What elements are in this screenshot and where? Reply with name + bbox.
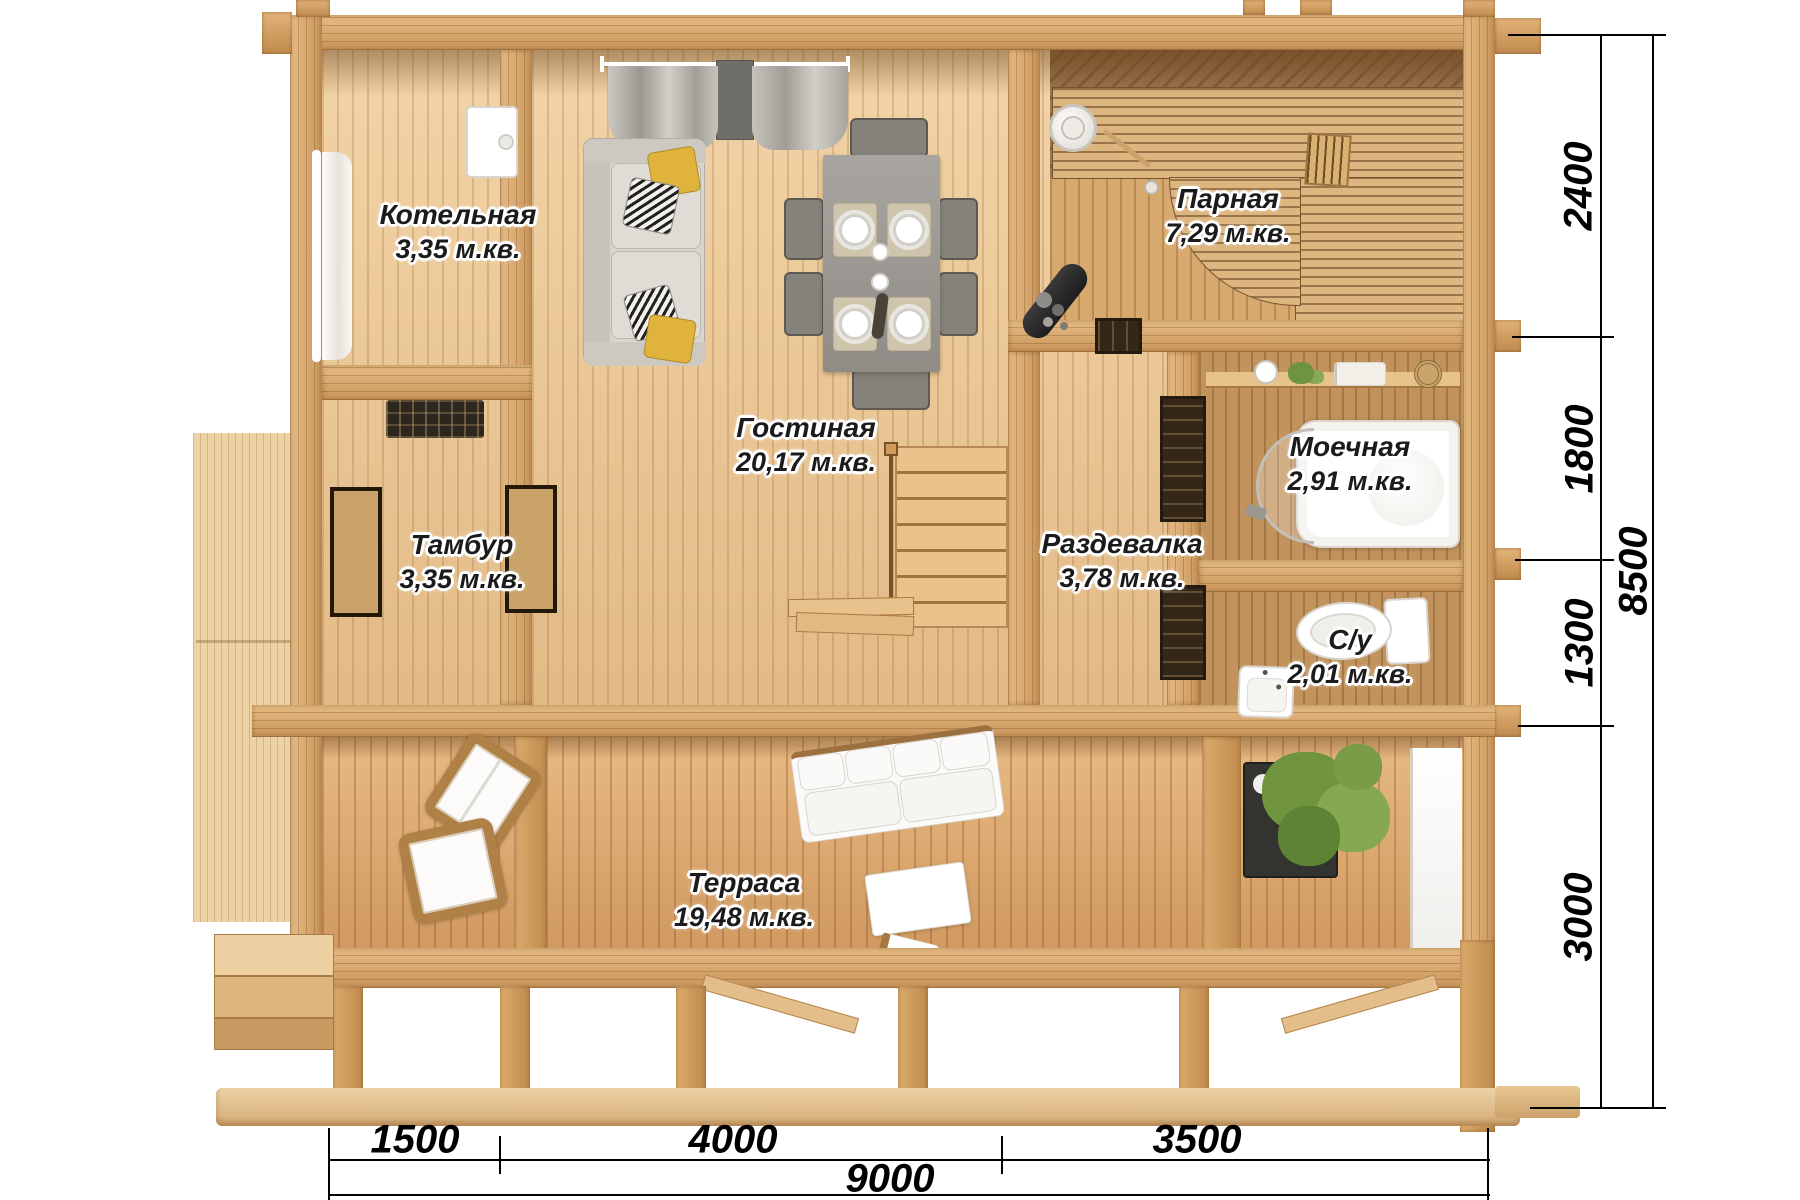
candle-2 bbox=[871, 273, 889, 291]
sauna-bucket-inner bbox=[1061, 116, 1085, 140]
front-post-3 bbox=[676, 986, 706, 1094]
room-name: Гостиная bbox=[736, 411, 876, 445]
stairs-landing-2 bbox=[796, 612, 915, 636]
wash-towels bbox=[1334, 362, 1386, 386]
wall-boiler-tambour bbox=[322, 365, 532, 400]
log-stub-top-2 bbox=[1300, 0, 1332, 15]
room-label-kotelnaya: Котельная 3,35 м.кв. bbox=[380, 198, 537, 266]
plate-3 bbox=[835, 304, 875, 344]
dim-value-8500: 8500 bbox=[1612, 527, 1657, 616]
front-post-1 bbox=[333, 986, 363, 1094]
wall-top bbox=[290, 15, 1495, 50]
wall-wash-wc bbox=[1199, 560, 1463, 592]
room-label-moechnaya: Моечная 2,91 м.кв. bbox=[1287, 430, 1412, 498]
sofa-back bbox=[584, 145, 610, 359]
terrace-armchair-2 bbox=[396, 816, 509, 926]
boiler-knob bbox=[498, 134, 514, 150]
floor-hatch-grate bbox=[386, 400, 484, 438]
stairs-newel-top bbox=[884, 442, 898, 456]
terrace-sofa-back-1 bbox=[796, 751, 846, 791]
front-post-5 bbox=[1179, 986, 1209, 1094]
room-area: 3,78 м.кв. bbox=[1041, 561, 1202, 595]
room-area: 19,48 м.кв. bbox=[674, 900, 814, 934]
log-stub-r2 bbox=[1495, 548, 1521, 580]
dining-chair-left-1 bbox=[784, 198, 824, 260]
room-label-terrasa: Терраса 19,48 м.кв. bbox=[674, 866, 814, 934]
tambour-window-left bbox=[330, 487, 382, 617]
room-name: Парная bbox=[1165, 182, 1290, 216]
dim-tick-bottom-1500 bbox=[499, 1136, 501, 1174]
terrace-post-mid-right bbox=[1203, 737, 1241, 955]
dim-tick-right-1300 bbox=[1518, 725, 1614, 727]
foundation-log-end-right bbox=[1495, 1086, 1580, 1118]
front-post-2 bbox=[500, 986, 530, 1094]
sauna-vent-grille bbox=[1304, 133, 1352, 188]
room-name: С/у bbox=[1287, 623, 1412, 657]
dim-tick-bottom-left bbox=[328, 1128, 330, 1200]
sauna-door bbox=[1095, 318, 1142, 354]
dim-value-4000: 4000 bbox=[689, 1118, 778, 1163]
curtain-rod-cap-left bbox=[600, 56, 604, 72]
washbasin bbox=[1237, 665, 1295, 719]
dim-tick-right-1800 bbox=[1515, 559, 1614, 561]
sofa bbox=[583, 138, 705, 365]
front-post-4 bbox=[898, 986, 928, 1094]
wall-right bbox=[1463, 15, 1495, 948]
boiler-curtain bbox=[322, 152, 352, 360]
room-area: 3,35 м.кв. bbox=[380, 232, 537, 266]
room-label-su: С/у 2,01 м.кв. bbox=[1287, 623, 1412, 691]
room-name: Моечная bbox=[1287, 430, 1412, 464]
dining-table bbox=[823, 155, 940, 372]
sauna-ladle-cup bbox=[1144, 180, 1159, 195]
dim-tick-right-top bbox=[1508, 34, 1666, 36]
boiler-window-sill bbox=[312, 150, 321, 362]
dim-value-2400: 2400 bbox=[1557, 142, 1602, 231]
dining-chair-top bbox=[850, 118, 928, 158]
log-stub-r3 bbox=[1495, 705, 1521, 737]
dim-value-3500: 3500 bbox=[1153, 1118, 1242, 1163]
sauna-bench-right bbox=[1296, 178, 1463, 330]
terrace-sofa-back-3 bbox=[891, 738, 941, 778]
sauna-heater-stones bbox=[1036, 292, 1052, 308]
room-name: Раздевалка bbox=[1041, 527, 1202, 561]
log-stub-tl-h bbox=[262, 12, 292, 54]
steps-tread-2 bbox=[214, 976, 334, 1018]
boiler-unit bbox=[466, 106, 518, 178]
log-stub-tl-v bbox=[296, 0, 330, 17]
terrace-door-white bbox=[1410, 748, 1462, 950]
curtain-right bbox=[752, 66, 848, 150]
dressing-door-wash bbox=[1160, 396, 1206, 522]
dining-chair-right-1 bbox=[938, 198, 978, 260]
log-stub-tr-h bbox=[1495, 18, 1541, 54]
dining-chair-right-2 bbox=[938, 272, 978, 336]
dining-chair-left-2 bbox=[784, 272, 824, 336]
terrace-sofa-back-4 bbox=[939, 731, 991, 771]
log-stub-top-1 bbox=[1243, 0, 1265, 15]
wash-hose-coil bbox=[1414, 360, 1442, 388]
washbasin-faucet-dot-1 bbox=[1263, 670, 1268, 675]
room-label-razdevalka: Раздевалка 3,78 м.кв. bbox=[1041, 527, 1202, 595]
plate-4 bbox=[889, 304, 929, 344]
room-label-tambur: Тамбур 3,35 м.кв. bbox=[399, 528, 524, 596]
wall-living-dressing bbox=[1008, 352, 1040, 705]
dim-tick-right-2400 bbox=[1512, 336, 1614, 338]
room-label-gostinaya: Гостиная 20,17 м.кв. bbox=[736, 411, 876, 479]
terrace-front-beam bbox=[290, 948, 1495, 988]
wall-under-sauna bbox=[1008, 320, 1463, 352]
room-area: 2,91 м.кв. bbox=[1287, 464, 1412, 498]
dim-value-1500: 1500 bbox=[371, 1118, 460, 1163]
planter-foliage-4 bbox=[1334, 744, 1382, 790]
room-name: Котельная bbox=[380, 198, 537, 232]
dim-tick-right-bottom bbox=[1530, 1107, 1666, 1109]
wash-shelf-plant bbox=[1288, 362, 1314, 384]
armchair-1-fold bbox=[458, 758, 502, 823]
dim-tick-bottom-4000 bbox=[1001, 1136, 1003, 1174]
sofa-pillow-yellow-2 bbox=[643, 314, 697, 365]
sofa-pillow-zigzag-1 bbox=[621, 176, 680, 235]
dressing-door-wc bbox=[1160, 585, 1206, 680]
dim-tick-bottom-right bbox=[1487, 1128, 1489, 1200]
dim-value-9000: 9000 bbox=[846, 1157, 935, 1200]
plate-1 bbox=[835, 210, 875, 250]
planter-foliage-3 bbox=[1278, 806, 1340, 866]
dim-value-1300: 1300 bbox=[1558, 599, 1603, 688]
dim-value-1800: 1800 bbox=[1558, 405, 1603, 494]
room-area: 7,29 м.кв. bbox=[1165, 216, 1290, 250]
room-name: Тамбур bbox=[399, 528, 524, 562]
candle-1 bbox=[871, 243, 889, 261]
dim-value-3000: 3000 bbox=[1557, 873, 1602, 962]
sauna-bench-top bbox=[1053, 88, 1463, 178]
room-area: 2,01 м.кв. bbox=[1287, 657, 1412, 691]
wall-terrace-front bbox=[252, 705, 1500, 737]
sauna-bucket bbox=[1049, 104, 1097, 152]
wash-kettle bbox=[1254, 360, 1278, 384]
room-area: 20,17 м.кв. bbox=[736, 445, 876, 479]
plate-2 bbox=[889, 210, 929, 250]
dining-chair-bottom bbox=[852, 368, 930, 410]
room-name: Терраса bbox=[674, 866, 814, 900]
terrace-sofa-back-2 bbox=[844, 745, 894, 785]
window-between-curtains bbox=[716, 60, 754, 140]
log-stub-tr-v bbox=[1463, 0, 1495, 17]
room-label-parnaya: Парная 7,29 м.кв. bbox=[1165, 182, 1290, 250]
steps-tread-1 bbox=[214, 934, 334, 976]
washbasin-bowl bbox=[1246, 677, 1287, 712]
top-wall-shadow bbox=[322, 50, 1463, 96]
steps-tread-3 bbox=[214, 1018, 334, 1050]
floor-plan-canvas: Котельная 3,35 м.кв. Тамбур 3,35 м.кв. Г… bbox=[0, 0, 1800, 1200]
room-area: 3,35 м.кв. bbox=[399, 562, 524, 596]
